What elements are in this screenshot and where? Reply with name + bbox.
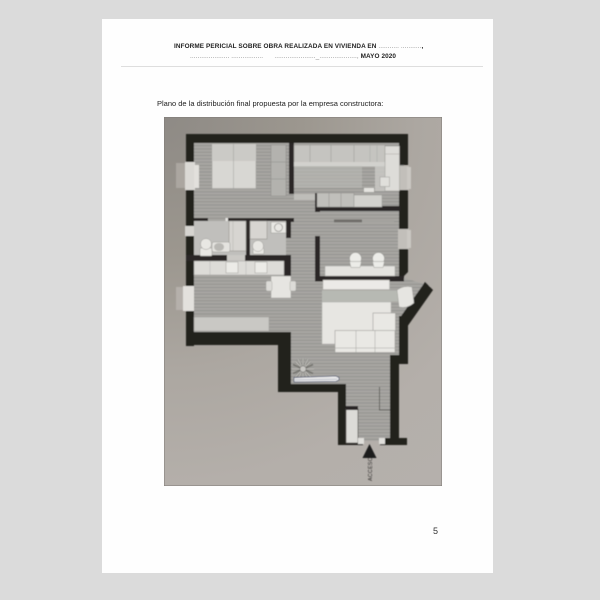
svg-text:ACCESO: ACCESO: [368, 457, 374, 481]
